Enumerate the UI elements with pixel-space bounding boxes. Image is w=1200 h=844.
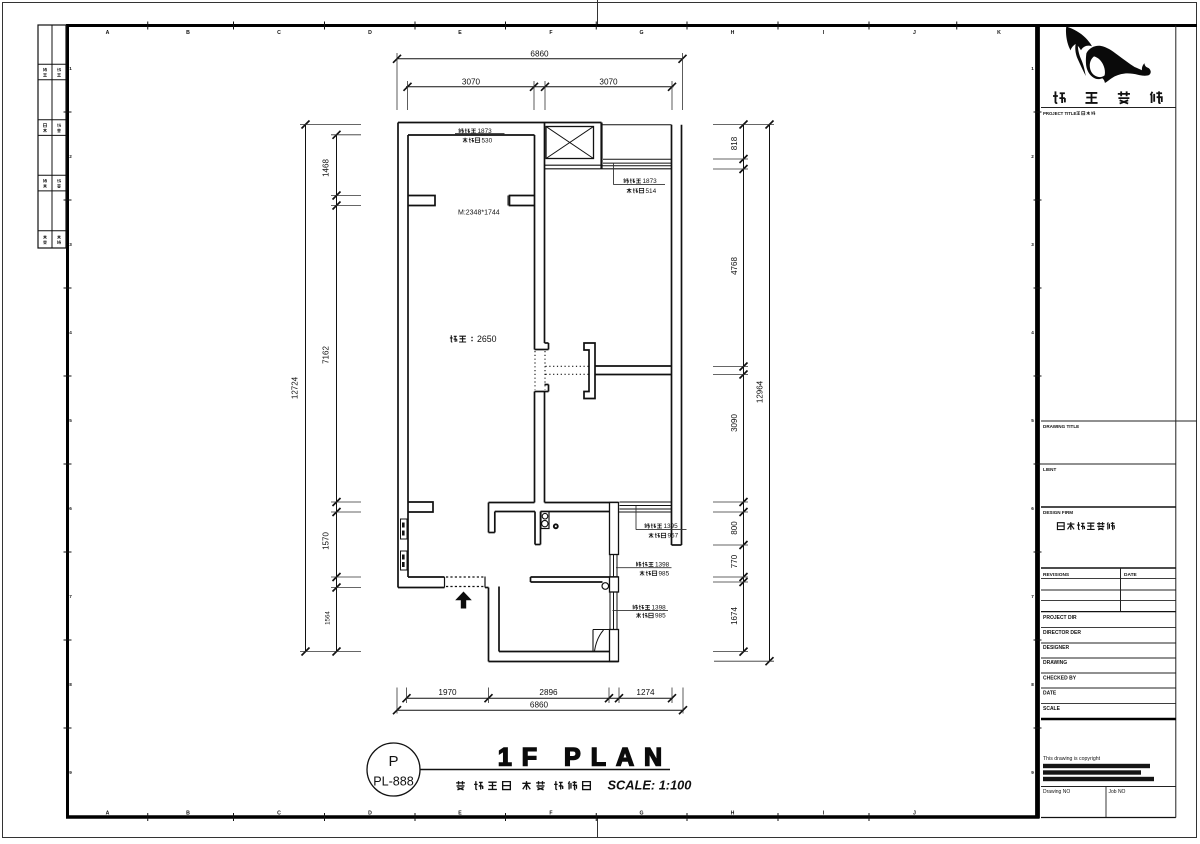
svg-text:DRAWING TITLE: DRAWING TITLE [1043,424,1079,429]
svg-text:985: 985 [659,570,670,577]
svg-text:G: G [639,30,643,36]
svg-text:7: 7 [69,594,72,599]
svg-text:12964: 12964 [756,380,765,403]
svg-text:A: A [106,30,110,36]
svg-text:12724: 12724 [291,376,300,399]
svg-text:PROJECT DIR: PROJECT DIR [1043,615,1077,621]
svg-text:P: P [388,753,398,770]
svg-text:E: E [458,811,462,817]
svg-text:1564: 1564 [325,611,332,625]
svg-text:F: F [549,811,552,817]
svg-text:7: 7 [1031,594,1034,599]
svg-text:D: D [368,30,372,36]
svg-text:4: 4 [69,330,72,335]
svg-text:957: 957 [668,533,679,540]
svg-text:6860: 6860 [530,50,549,59]
svg-text:3070: 3070 [462,77,481,86]
svg-text:1: 1 [1031,66,1034,71]
svg-text:LIENT: LIENT [1043,467,1056,472]
svg-text:8: 8 [1031,682,1034,687]
svg-text:C: C [277,811,281,817]
svg-text:A: A [106,811,110,817]
svg-text:DESIGNER: DESIGNER [1043,645,1070,651]
svg-text:9: 9 [1031,770,1034,775]
svg-text:J: J [913,30,916,36]
svg-text:3090: 3090 [730,414,739,432]
svg-text:B: B [186,811,190,817]
svg-text:818: 818 [730,136,739,150]
svg-text:8: 8 [69,682,72,687]
svg-text:3: 3 [1031,242,1034,247]
svg-text:DATE: DATE [1124,572,1138,578]
svg-text:6: 6 [1031,506,1034,511]
svg-text:5: 5 [1031,418,1034,423]
svg-text:1570: 1570 [322,532,331,550]
svg-text:800: 800 [730,521,739,535]
svg-text:SCALE: SCALE [1043,706,1061,712]
svg-text:5: 5 [69,418,72,423]
svg-text:Drawing NO: Drawing NO [1043,789,1070,795]
svg-text:Job NO: Job NO [1109,789,1126,795]
svg-text:F: F [549,30,552,36]
svg-text:3: 3 [69,242,72,247]
svg-text:H: H [731,30,735,36]
svg-text:514: 514 [646,188,657,195]
svg-text:1468: 1468 [322,159,331,177]
svg-text:3070: 3070 [599,77,618,86]
svg-text:985: 985 [655,613,666,620]
svg-text:1F PLAN: 1F PLAN [498,744,672,772]
svg-text:530: 530 [482,137,493,144]
svg-text:1274: 1274 [636,688,655,697]
svg-text:2: 2 [1031,154,1034,159]
svg-text:DATE: DATE [1043,690,1057,696]
svg-text:D: D [368,811,372,817]
svg-text:J: J [913,811,916,817]
svg-text:6: 6 [69,506,72,511]
svg-text:PL-888: PL-888 [373,775,414,789]
svg-text:REVISIONS: REVISIONS [1043,572,1070,578]
svg-text:2650: 2650 [477,334,497,344]
svg-text:M:2348*1744: M:2348*1744 [458,210,500,217]
svg-text:1: 1 [69,66,72,71]
svg-text:1873: 1873 [643,178,658,185]
svg-text:PROJECT TITLE: PROJECT TITLE [1043,111,1077,116]
svg-text:2: 2 [69,154,72,159]
svg-text:DESIGN FIRM: DESIGN FIRM [1043,510,1073,515]
svg-text:E: E [458,30,462,36]
svg-text:1970: 1970 [438,688,457,697]
svg-text:K: K [997,30,1001,36]
svg-text:9: 9 [69,770,72,775]
svg-text:G: G [639,811,643,817]
svg-text:C: C [277,30,281,36]
svg-text:This drawing is copyright: This drawing is copyright [1043,756,1101,762]
svg-text:6860: 6860 [530,701,549,710]
svg-text:2896: 2896 [539,688,558,697]
svg-text:1395: 1395 [664,523,679,530]
svg-text:1674: 1674 [730,607,739,625]
svg-text:4: 4 [1031,330,1034,335]
svg-text:H: H [731,811,735,817]
svg-text:DIRECTOR DER: DIRECTOR DER [1043,630,1081,636]
svg-text:7162: 7162 [322,346,331,364]
svg-text:SCALE: 1:100: SCALE: 1:100 [608,778,692,793]
svg-text:B: B [186,30,190,36]
svg-text:770: 770 [730,554,739,568]
svg-text:CHECKED BY: CHECKED BY [1043,675,1077,681]
svg-text:DRAWING: DRAWING [1043,660,1067,666]
svg-text:4768: 4768 [730,257,739,275]
